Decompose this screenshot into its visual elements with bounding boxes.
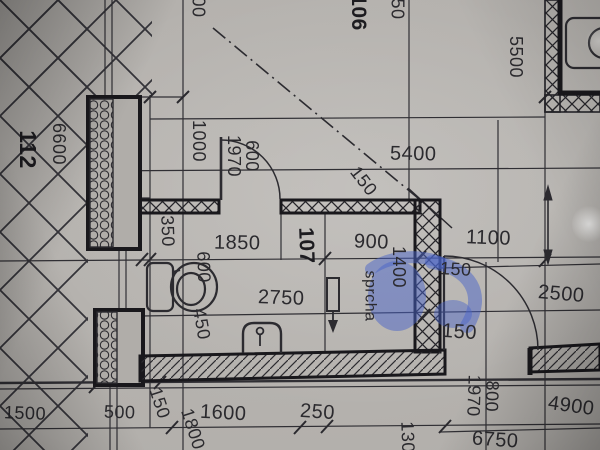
dim-partial-top-right: 50	[389, 0, 407, 20]
dim-wc-600: 600	[194, 251, 213, 283]
room-number-112: 112	[16, 130, 39, 169]
dim-door-left: 600 1970	[225, 135, 261, 177]
dim-500: 500	[104, 402, 136, 421]
floor-plan-photo: 112 6600 106 00 50 5500 5400 150 1000 60…	[0, 0, 600, 450]
dim-2500: 2500	[537, 282, 585, 306]
dim-1600: 1600	[200, 402, 247, 424]
dim-1100: 1100	[466, 227, 512, 249]
room-number-106: 106	[348, 0, 369, 31]
dim-130: 130	[398, 421, 417, 450]
dim-1400: 1400	[390, 246, 408, 288]
dim-6600: 6600	[50, 123, 68, 165]
dim-door-left-width: 600	[242, 140, 262, 172]
dim-150-right-bot: 150	[441, 321, 477, 343]
dim-5500: 5500	[507, 36, 525, 78]
upper-right-fixture	[566, 18, 600, 68]
dim-door-left-height: 1970	[224, 135, 244, 177]
shower-label: sprcha	[362, 270, 378, 321]
bottom-wall-band	[140, 344, 600, 381]
dim-150-right-top: 150	[440, 259, 472, 279]
dim-1850: 1850	[214, 233, 261, 254]
dim-door-right-width: 800	[481, 380, 502, 412]
dim-5400: 5400	[390, 144, 437, 165]
insulated-wall-blocks	[88, 97, 143, 385]
dim-900: 900	[354, 231, 390, 252]
washbasin-fixture	[243, 323, 281, 353]
shower-arrow	[327, 278, 339, 333]
dim-partial-top-left: 00	[190, 0, 208, 18]
dim-door-right-height: 1970	[463, 374, 484, 417]
dim-2750: 2750	[258, 287, 305, 309]
top-right-wall	[545, 0, 600, 112]
dim-wc-450: 450	[190, 307, 213, 341]
dim-250: 250	[299, 401, 335, 423]
dim-1500: 1500	[4, 403, 47, 422]
room-number-107: 107	[295, 227, 317, 264]
dim-6750: 6750	[471, 428, 519, 450]
dim-1000: 1000	[190, 120, 208, 162]
dim-door-right: 800 1970	[464, 374, 501, 417]
dim-350: 350	[158, 215, 177, 247]
